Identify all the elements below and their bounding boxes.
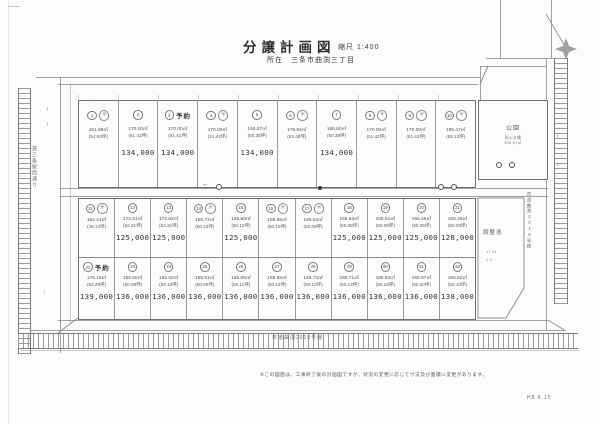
lot-price: 128,000 — [441, 233, 474, 242]
lot-cell: 28165.72㎡(50.13坪)136,000 — [296, 258, 332, 319]
park-parcel: 公園 防火水槽 306.67㎡ — [478, 100, 548, 180]
lot-cell: 22予約176.16㎡(53.29坪)139,000 — [79, 258, 115, 319]
sold-stamp-icon: ✳ — [205, 203, 216, 214]
lot-number: 25 — [200, 262, 210, 272]
lot-cell: 17✳165.63㎡(50.09坪) — [296, 199, 332, 257]
lot-cell: 19165.51㎡(50.06坪)125,000 — [368, 199, 404, 257]
lot-cell: 12172.61㎡(52.21坪)125,000 — [115, 199, 151, 257]
lot-area-tsubo: (50.10坪) — [448, 282, 467, 288]
lot-area-tsubo: (49.13坪) — [87, 224, 106, 230]
lot-area: 172.62㎡ — [159, 215, 178, 222]
lot-cell: 20165.46㎡(50.05坪)125,000 — [404, 199, 440, 257]
lot-number: 13 — [164, 203, 174, 213]
lot-number: 27 — [272, 262, 282, 272]
lot-header: 13 — [164, 203, 174, 213]
lot-number: 17 — [302, 204, 312, 214]
lot-area-tsubo: (51.42坪) — [367, 134, 386, 140]
lot-cell: 29165.71㎡(50.13坪)136,000 — [332, 258, 368, 319]
pond-fine-print: 2.9 — [486, 258, 492, 262]
lot-cell: 30165.84㎡(50.16坪)136,000 — [368, 258, 404, 319]
lot-cell: 1✳181.98㎡(54.93坪) — [79, 101, 119, 187]
lot-cell: 11✳162.41㎡(49.13坪) — [79, 199, 115, 257]
road-label-left: 燕三条駅西通り — [31, 146, 38, 188]
lot-price: 136,000 — [296, 292, 329, 301]
road-line — [30, 330, 564, 331]
lot-header: 27 — [272, 262, 282, 272]
lot-header: 4✳ — [206, 110, 228, 121]
lot-area: 170.00㎡ — [128, 125, 147, 132]
road-line — [480, 66, 546, 67]
sold-stamp-icon: ✳ — [456, 110, 467, 121]
lot-number: 10 — [445, 111, 455, 121]
lot-area: 166.57㎡ — [247, 125, 266, 132]
road-line — [60, 188, 548, 189]
corner-mark — [8, 6, 20, 7]
reserved-label: 予約 — [176, 110, 191, 120]
lot-price: 136,000 — [369, 292, 402, 301]
lot-area-tsubo: (50.03坪) — [448, 223, 467, 229]
sold-stamp-icon: ✳ — [297, 110, 308, 121]
lot-number: 15 — [236, 203, 246, 213]
lot-header: 8✳ — [365, 110, 387, 121]
dimension-ticks — [78, 95, 475, 99]
lot-cell: 31165.97㎡(50.20坪)136,000 — [404, 258, 440, 319]
lot-area-tsubo: (50.12坪) — [267, 282, 286, 288]
survey-point-icon — [451, 184, 457, 190]
lot-cell: 26165.65㎡(50.11坪)136,000 — [223, 258, 259, 319]
lot-area: 170.00㎡ — [168, 125, 187, 132]
arrow-down-icon: ↓ — [46, 106, 49, 112]
lot-price: 138,000 — [441, 292, 474, 301]
lot-header: 23 — [128, 262, 138, 272]
lot-cell: 8✳170.00㎡(51.42坪) — [357, 101, 397, 187]
road-line — [70, 84, 71, 324]
lot-area: 165.84㎡ — [376, 274, 395, 281]
lot-area: 165.62㎡ — [159, 274, 178, 281]
lot-price: 134,000 — [241, 148, 274, 157]
lot-header: 5 — [252, 110, 262, 120]
lot-number: 23 — [128, 262, 138, 272]
road-line — [500, 0, 501, 58]
lot-header: 25 — [200, 262, 210, 272]
lot-area-tsubo: (50.06坪) — [376, 223, 395, 229]
lot-area: 170.00㎡ — [367, 126, 386, 133]
pond-fine-print: 17.11 — [486, 250, 497, 254]
lot-block-row-1: 1✳181.98㎡(54.93坪)2170.00㎡(51.42坪)134,000… — [78, 100, 476, 188]
park-label: 公園 — [479, 123, 547, 132]
lot-area: 165.71㎡ — [339, 274, 358, 281]
lot-area-tsubo: (50.38坪) — [248, 133, 267, 139]
lot-area: 165.65㎡ — [267, 216, 286, 223]
lot-cell: 3予約170.00㎡(51.42坪)134,000 — [158, 101, 198, 187]
sold-stamp-icon: ✳ — [278, 203, 289, 214]
reserved-label: 予約 — [95, 262, 110, 272]
road-line — [58, 84, 478, 85]
lot-header: 22予約 — [83, 262, 110, 272]
sold-stamp-icon: ✳ — [97, 203, 108, 214]
lot-area-tsubo: (51.42坪) — [168, 133, 187, 139]
lot-area-tsubo: (50.10坪) — [267, 224, 286, 230]
lot-area-tsubo: (50.20坪) — [412, 282, 431, 288]
lot-header: 31 — [417, 262, 427, 272]
arrow-down-icon: ↓ — [43, 290, 46, 295]
lot-number: 20 — [417, 203, 427, 213]
lot-header: 12 — [128, 203, 138, 213]
lot-cell: 14✳165.72㎡(50.13坪) — [187, 199, 223, 257]
road-line — [486, 58, 554, 59]
lot-cell: 16✳165.65㎡(50.10坪) — [259, 199, 295, 257]
lot-cell: 9✳170.00㎡(51.42坪) — [397, 101, 437, 187]
lot-area: 165.61㎡ — [195, 274, 214, 281]
lot-row-3: 22予約176.16㎡(53.29坪)139,00023165.60㎡(50.0… — [79, 258, 475, 319]
lot-number: 31 — [417, 262, 427, 272]
lot-price: 125,000 — [116, 233, 149, 242]
lot-header: 11✳ — [86, 203, 108, 214]
lot-number: 12 — [128, 203, 138, 213]
lot-area: 165.26㎡ — [448, 215, 467, 222]
lot-area: 170.00㎡ — [208, 126, 227, 133]
lot-header: 19 — [381, 203, 391, 213]
road-line — [551, 0, 552, 58]
lot-cell: 25165.61㎡(50.09坪)136,000 — [187, 258, 223, 319]
lot-area-tsubo: (51.42坪) — [208, 134, 227, 140]
lot-area-tsubo: (51.42坪) — [406, 134, 425, 140]
lot-area-tsubo: (51.42坪) — [128, 133, 147, 139]
lot-cell: 2170.00㎡(51.42坪)134,000 — [119, 101, 159, 187]
lot-price: 136,000 — [224, 292, 257, 301]
lot-row-2: 11✳162.41㎡(49.13坪)12172.61㎡(52.21坪)125,0… — [79, 199, 475, 258]
lot-area-tsubo: (50.05坪) — [412, 223, 431, 229]
lot-header: 32 — [453, 262, 463, 272]
lot-header: 3予約 — [165, 110, 192, 120]
sold-stamp-icon: ✳ — [218, 110, 229, 121]
lot-price: 136,000 — [333, 292, 366, 301]
lot-header: 24 — [164, 262, 174, 272]
lot-number: 30 — [381, 262, 391, 272]
lot-header: 18 — [344, 203, 354, 213]
lot-number: 22 — [83, 262, 93, 272]
lot-price: 136,000 — [152, 292, 185, 301]
lot-number: 14 — [194, 204, 204, 214]
lot-header: 14✳ — [194, 203, 216, 214]
lot-number: 24 — [164, 262, 174, 272]
road-hatch-right — [554, 58, 568, 304]
lot-price: 136,000 — [116, 292, 149, 301]
sold-stamp-icon: ✳ — [377, 110, 388, 121]
lot-header: 29 — [344, 262, 354, 272]
road-line — [60, 77, 61, 353]
road-line — [36, 77, 480, 78]
lot-header: 2 — [133, 110, 143, 120]
lot-number: 6 — [286, 111, 296, 121]
survey-point-icon — [438, 184, 444, 190]
lot-area: 165.60㎡ — [123, 274, 142, 281]
lot-price: 134,000 — [161, 148, 194, 157]
lot-cell: 23165.60㎡(50.09坪)136,000 — [115, 258, 151, 319]
lot-price: 136,000 — [260, 292, 293, 301]
road-line — [58, 320, 548, 321]
lot-number: 28 — [308, 262, 318, 272]
survey-point-icon — [318, 186, 322, 190]
lot-price: 125,000 — [333, 233, 366, 242]
lot-number: 32 — [453, 262, 463, 272]
lot-header: 30 — [381, 262, 391, 272]
lot-cell: 6✳176.84㎡(53.48坪) — [278, 101, 318, 187]
lot-number: 9 — [405, 111, 415, 121]
lot-area: 165.72㎡ — [303, 274, 322, 281]
lot-cell: 27165.68㎡(50.12坪)136,000 — [259, 258, 295, 319]
lot-area: 165.72㎡ — [195, 216, 214, 223]
lot-header: 21 — [453, 203, 463, 213]
road-line — [20, 350, 578, 351]
lot-area-tsubo: (54.93坪) — [89, 134, 108, 140]
lot-header: 28 — [308, 262, 318, 272]
lot-cell: 32165.62㎡(50.10坪)138,000 — [440, 258, 475, 319]
lot-area-tsubo: (50.13坪) — [195, 224, 214, 230]
lot-cell: 13172.62㎡(52.21坪)125,000 — [151, 199, 187, 257]
survey-point-icon — [496, 162, 502, 168]
lot-cell: 7166.60㎡(50.39坪)134,000 — [317, 101, 357, 187]
sold-stamp-icon: ✳ — [99, 110, 110, 121]
lot-area-tsubo: (50.13坪) — [340, 282, 359, 288]
lot-number: 3 — [165, 110, 175, 120]
lot-area: 176.84㎡ — [287, 126, 306, 133]
lot-cell: 5166.57㎡(50.38坪)134,000 — [238, 101, 278, 187]
arrow-up-icon: ↑ — [556, 134, 559, 140]
lot-number: 2 — [133, 110, 143, 120]
lot-area-tsubo: (50.11坪) — [232, 282, 251, 288]
lot-header: 26 — [236, 262, 246, 272]
lot-area: 165.62㎡ — [448, 274, 467, 281]
lot-number: 29 — [344, 262, 354, 272]
lot-area-tsubo: (50.10坪) — [159, 282, 178, 288]
lot-area: 165.46㎡ — [412, 215, 431, 222]
road-line — [546, 58, 547, 330]
lot-area-tsubo: (53.48坪) — [287, 134, 306, 140]
lot-area-tsubo: (59.12坪) — [446, 134, 465, 140]
lot-price: 125,000 — [152, 233, 185, 242]
lot-area: 165.68㎡ — [231, 215, 250, 222]
page-edge-line — [8, 0, 9, 424]
lot-area-tsubo: (50.09坪) — [123, 282, 142, 288]
lot-number: 4 — [206, 111, 216, 121]
lot-header: 9✳ — [405, 110, 427, 121]
survey-point-icon — [216, 184, 222, 190]
lot-price: 136,000 — [188, 292, 221, 301]
lot-header: 10✳ — [445, 110, 467, 121]
lot-header: 16✳ — [266, 203, 288, 214]
lot-area-tsubo: (50.16坪) — [376, 282, 395, 288]
lot-area: 166.60㎡ — [327, 125, 346, 132]
lot-area: 181.98㎡ — [89, 126, 108, 133]
lot-area-tsubo: (50.39坪) — [327, 133, 346, 139]
lot-header: 1✳ — [87, 110, 109, 121]
road-hatch-left — [18, 88, 31, 354]
lot-area-tsubo: (50.13坪) — [304, 282, 323, 288]
lot-area: 165.65㎡ — [231, 274, 250, 281]
lot-price: 125,000 — [369, 233, 402, 242]
lot-header: 6✳ — [286, 110, 308, 121]
lot-number: 1 — [87, 111, 97, 121]
lot-price: 136,000 — [405, 292, 438, 301]
lot-cell: 18165.56㎡(50.08坪)125,000 — [332, 199, 368, 257]
lot-area-tsubo: (53.29坪) — [87, 282, 106, 288]
road-line — [480, 66, 481, 102]
date-stamp: H8 6.15 — [527, 395, 552, 401]
arrow-left-icon: ← — [202, 181, 209, 188]
lot-area: 172.61㎡ — [123, 215, 142, 222]
lot-number: 21 — [453, 203, 463, 213]
lot-number: 5 — [252, 110, 262, 120]
survey-point-icon — [509, 162, 515, 168]
lot-area: 165.56㎡ — [339, 215, 358, 222]
lot-area: 165.51㎡ — [376, 215, 395, 222]
lot-number: 26 — [236, 262, 246, 272]
lot-number: 7 — [332, 110, 342, 120]
arrow-down-icon: ↓ — [556, 162, 559, 168]
page-title: 分譲計画図 — [243, 36, 336, 56]
lot-cell: 24165.62㎡(50.10坪)136,000 — [151, 258, 187, 319]
lot-cell: 15165.68㎡(50.12坪)125,000 — [223, 199, 259, 257]
road-label-bottom: 市道曲渕2019号線 — [272, 334, 323, 341]
lot-number: 18 — [344, 203, 354, 213]
lot-price: 134,000 — [320, 148, 353, 157]
lot-price: 139,000 — [80, 292, 113, 301]
lot-number: 16 — [266, 204, 276, 214]
lot-header: 20 — [417, 203, 427, 213]
lot-area: 165.97㎡ — [412, 274, 431, 281]
pond-label: 調整池 — [483, 228, 503, 236]
lot-area-tsubo: (52.21坪) — [159, 223, 178, 229]
lot-price: 125,000 — [405, 233, 438, 242]
sold-stamp-icon: ✳ — [314, 203, 325, 214]
arrow-up-icon: ↑ — [46, 122, 49, 128]
lot-area-tsubo: (50.12坪) — [231, 223, 250, 229]
sold-stamp-icon: ✳ — [416, 110, 427, 121]
lot-area-tsubo: (52.21坪) — [123, 223, 142, 229]
lot-cell: 4✳170.00㎡(51.42坪) — [198, 101, 238, 187]
lot-price: 134,000 — [121, 148, 154, 157]
lot-area: 176.16㎡ — [87, 274, 106, 281]
location-label: 所在 三条市曲渕三丁目 — [267, 55, 355, 65]
lot-number: 8 — [365, 111, 375, 121]
lot-area: 165.68㎡ — [267, 274, 286, 281]
lot-area: 170.00㎡ — [406, 126, 425, 133]
lot-area-tsubo: (50.09坪) — [195, 282, 214, 288]
lot-price: 125,000 — [224, 233, 257, 242]
lot-area-tsubo: (50.09坪) — [304, 224, 323, 230]
lot-cell: 10✳195.47㎡(59.12坪) — [436, 101, 475, 187]
lot-number: 11 — [86, 204, 96, 214]
lot-area: 162.41㎡ — [87, 216, 106, 223]
lot-area: 165.63㎡ — [303, 216, 322, 223]
lot-area-tsubo: (50.08坪) — [340, 223, 359, 229]
park-area-value: 306.67㎡ — [479, 141, 547, 146]
lot-header: 15 — [236, 203, 246, 213]
lot-cell: 21165.26㎡(50.03坪)128,000 — [440, 199, 475, 257]
scale-label: 縮尺 1:400 — [338, 42, 379, 52]
lot-number: 19 — [381, 203, 391, 213]
lot-header: 7 — [332, 110, 342, 120]
lot-block-rows-2-3: 11✳162.41㎡(49.13坪)12172.61㎡(52.21坪)125,0… — [78, 198, 476, 320]
lot-header: 17✳ — [302, 203, 324, 214]
footnote: ※この図面は、工事終了後の計画図ですが、状況の変更に応じて寸法及び面積に変更があ… — [260, 371, 560, 378]
subdivision-plan-sheet: 分譲計画図 縮尺 1:400 所在 三条市曲渕三丁目 燕三条駅西通り 市道曲渕2… — [0, 0, 600, 424]
road-line — [60, 196, 548, 197]
road-label-right: 市道曲渕2018号線 — [526, 192, 532, 249]
lot-area: 195.47㎡ — [446, 126, 465, 133]
